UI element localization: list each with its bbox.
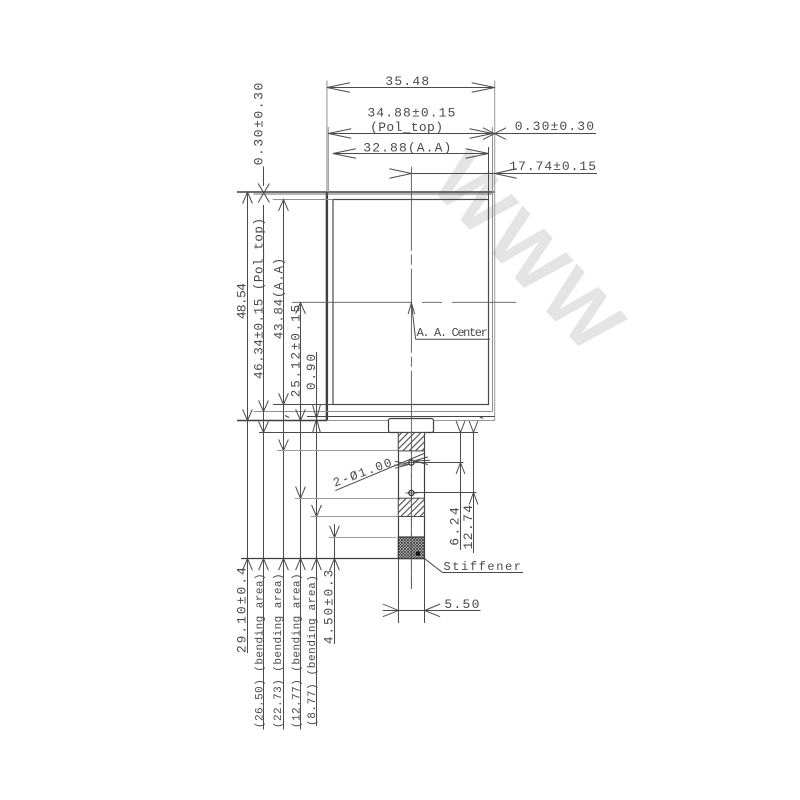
svg-text:46.34±0.15 (Pol_top): 46.34±0.15 (Pol_top) bbox=[252, 218, 266, 379]
svg-text:34.88±0.15: 34.88±0.15 bbox=[367, 105, 455, 120]
svg-text:5.50: 5.50 bbox=[444, 597, 479, 612]
svg-text:35.48: 35.48 bbox=[385, 74, 429, 89]
svg-text:48.54: 48.54 bbox=[235, 283, 250, 319]
svg-text:0.30±0.30: 0.30±0.30 bbox=[515, 119, 594, 134]
svg-text:(8.77) (bending area): (8.77) (bending area) bbox=[307, 575, 319, 726]
svg-text:(26.50) (bending area): (26.50) (bending area) bbox=[254, 573, 266, 728]
svg-text:2-Ø1.00: 2-Ø1.00 bbox=[331, 456, 394, 490]
svg-text:Stiffener: Stiffener bbox=[444, 560, 522, 574]
svg-text:(Pol_top): (Pol_top) bbox=[370, 120, 443, 135]
svg-text:29.10±0.4: 29.10±0.4 bbox=[235, 567, 250, 653]
svg-text:(22.73) (bending area): (22.73) (bending area) bbox=[273, 573, 285, 728]
svg-text:25.12±0.15: 25.12±0.15 bbox=[289, 305, 303, 397]
svg-text:43.84(A.A): 43.84(A.A) bbox=[272, 258, 286, 339]
svg-text:32.88(A.A): 32.88(A.A) bbox=[363, 140, 451, 155]
svg-text:0.90: 0.90 bbox=[305, 354, 319, 390]
svg-text:17.74±0.15: 17.74±0.15 bbox=[509, 159, 596, 174]
svg-text:A. A. Center: A. A. Center bbox=[417, 326, 488, 340]
svg-text:(12.77) (bending area): (12.77) (bending area) bbox=[291, 573, 303, 728]
svg-text:0.30±0.30: 0.30±0.30 bbox=[251, 83, 266, 166]
svg-text:12.74: 12.74 bbox=[461, 505, 476, 550]
